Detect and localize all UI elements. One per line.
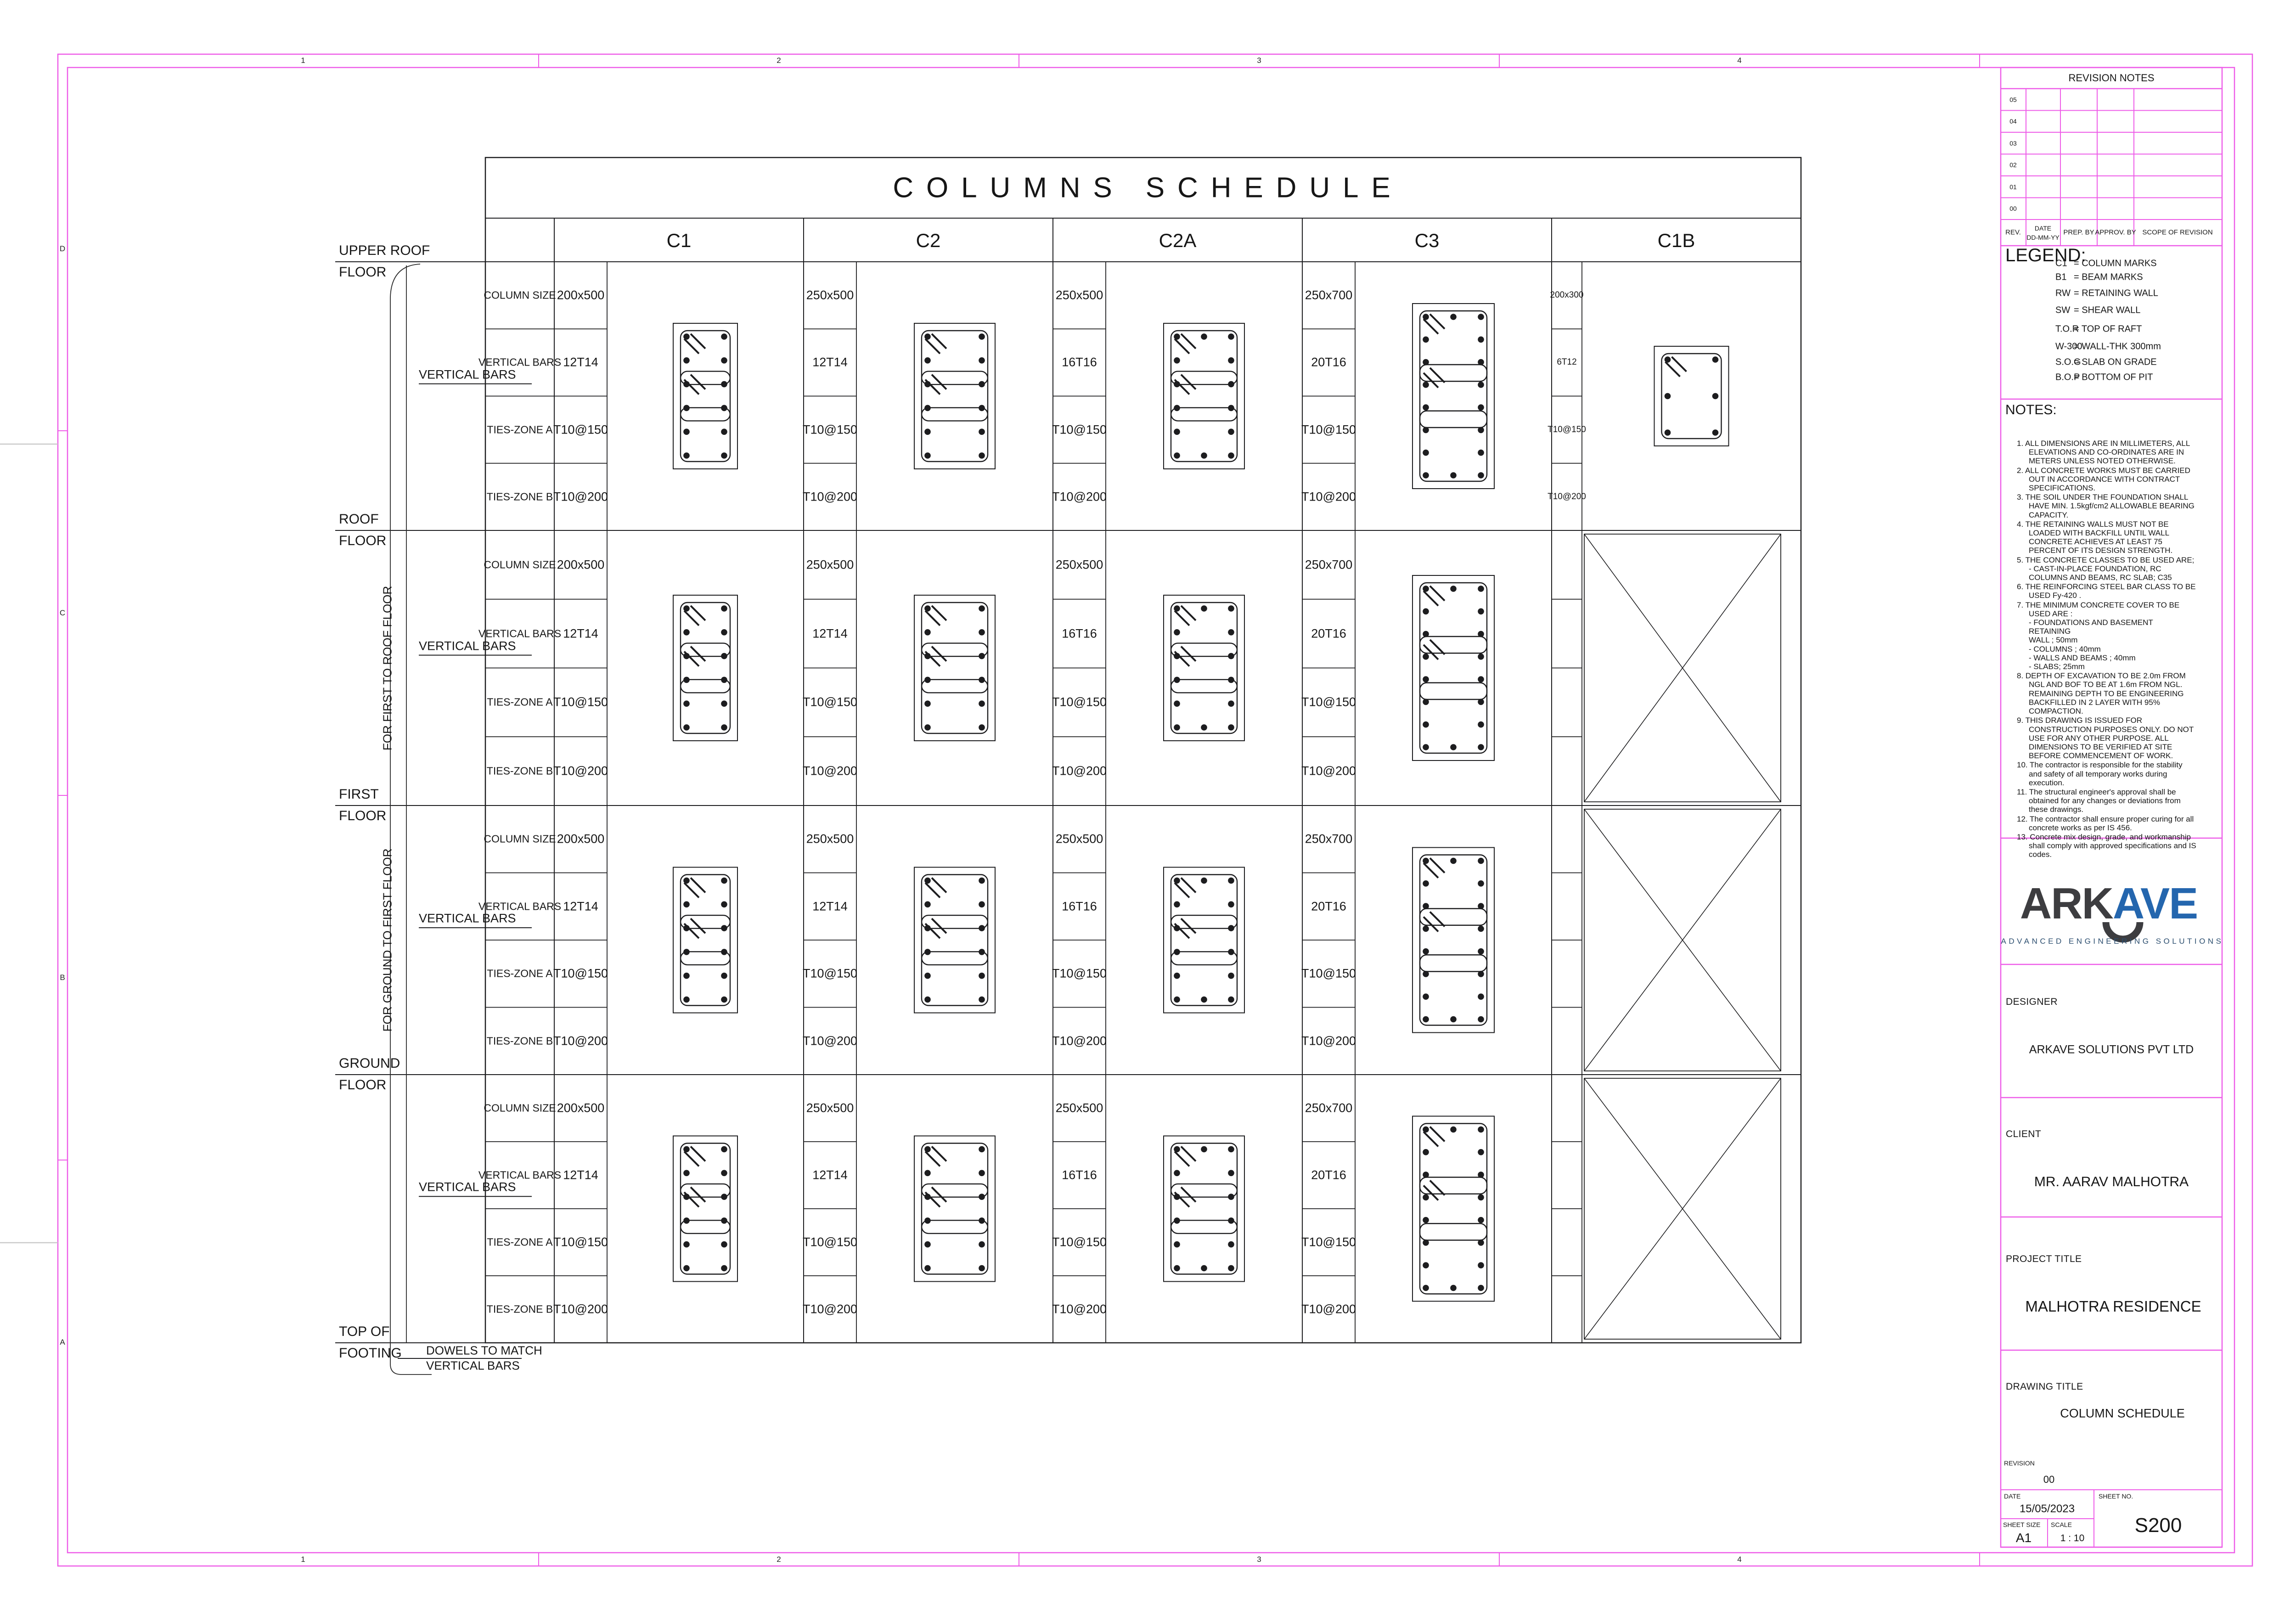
revision-row-number: 02 — [2009, 161, 2017, 169]
revision-row-number: 03 — [2009, 140, 2017, 147]
row-label: TIES-ZONE A — [487, 968, 552, 980]
sheet-no-value: S200 — [2135, 1514, 2182, 1537]
value-c2-vertical-bars: 12T14 — [812, 1168, 848, 1183]
value-c1-ties-zone-a: T10@150 — [553, 967, 608, 981]
note-item: 1. ALL DIMENSIONS ARE IN MILLIMETERS, AL… — [2017, 439, 2197, 466]
value-c3-size: 250x700 — [1305, 1101, 1353, 1115]
value-c2a-vertical-bars: 16T16 — [1062, 1168, 1097, 1183]
sheet-no-label: SHEET NO. — [2099, 1493, 2133, 1500]
value-c1-vertical-bars: 12T14 — [563, 899, 598, 913]
value-c1-ties-zone-a: T10@150 — [553, 1235, 608, 1250]
value-c2a-ties-zone-b: T10@200 — [1052, 764, 1107, 778]
value-c1-ties-zone-b: T10@200 — [553, 1302, 608, 1317]
logo-text-ark: ARK — [2020, 879, 2113, 928]
value-c3-ties-zone-b: T10@200 — [1301, 1034, 1356, 1048]
edge-marker-left-B: B — [60, 973, 65, 982]
value-c3-vertical-bars: 20T16 — [1311, 899, 1346, 913]
designer-label: DESIGNER — [2006, 997, 2058, 1008]
column-sections — [673, 304, 1729, 1301]
value-c1-ties-zone-b: T10@200 — [553, 764, 608, 778]
value-c2-vertical-bars: 12T14 — [812, 626, 848, 641]
value-c3-ties-zone-a: T10@150 — [1301, 695, 1356, 710]
value-c1-vertical-bars: 12T14 — [563, 626, 598, 641]
edge-marker-left-A: A — [60, 1338, 65, 1347]
revision-row-number: 04 — [2009, 118, 2017, 125]
revision-footer-rev: REV. — [2005, 229, 2021, 237]
column-section-c2a — [1164, 323, 1244, 469]
edge-marker-top-3: 3 — [1257, 56, 1261, 65]
value-c3-vertical-bars: 20T16 — [1311, 355, 1346, 370]
group-range-label: FOR GROUND TO FIRST FLOOR — [381, 849, 395, 1032]
edge-marker-top-2: 2 — [777, 56, 781, 65]
floor-label-line2: FLOOR — [339, 265, 386, 280]
column-section-c1 — [673, 867, 737, 1013]
revision-notes-title: REVISION NOTES — [2068, 72, 2154, 84]
value-c2a-ties-zone-a: T10@150 — [1052, 1235, 1107, 1250]
value-c2a-vertical-bars: 16T16 — [1062, 355, 1097, 370]
value-c2-size: 250x500 — [806, 832, 854, 846]
legend-item-value: = BEAM MARKS — [2074, 272, 2143, 283]
value-c3-size: 250x700 — [1305, 288, 1353, 303]
crossed-cells — [1584, 534, 1781, 1339]
value-c2-size: 250x500 — [806, 288, 854, 303]
legend-item-value: = COLUMN MARKS — [2074, 259, 2157, 269]
value-c1-ties-zone-b: T10@200 — [553, 1034, 608, 1048]
value-c2a-size: 250x500 — [1056, 832, 1103, 846]
revision-row-number: 00 — [2009, 205, 2017, 212]
note-item: 8. DEPTH OF EXCAVATION TO BE 2.0m FROM N… — [2017, 671, 2197, 715]
revision-footer-prep: PREP. BY — [2063, 229, 2094, 237]
row-label: VERTICAL BARS — [478, 1169, 561, 1182]
vertical-bars-side-label: VERTICAL BARS — [419, 1180, 516, 1194]
value-c3-ties-zone-a: T10@150 — [1301, 1235, 1356, 1250]
column-section-c3 — [1412, 848, 1494, 1033]
value-c1b-vertical-bars: 6T12 — [1557, 357, 1576, 367]
revision-value: 00 — [2043, 1474, 2054, 1486]
revision-footer-date-line1: DATE — [2035, 225, 2051, 232]
value-c3-vertical-bars: 20T16 — [1311, 626, 1346, 641]
logo-text-ave: AVE — [2113, 879, 2197, 928]
floor-label-line1: FIRST — [339, 787, 379, 802]
notes-list: 1. ALL DIMENSIONS ARE IN MILLIMETERS, AL… — [2017, 439, 2197, 860]
column-section-c2 — [914, 323, 995, 469]
project-title-label: PROJECT TITLE — [2006, 1254, 2082, 1265]
footing-note-line1: DOWELS TO MATCH — [426, 1344, 542, 1358]
sheet-size-value: A1 — [2016, 1531, 2032, 1545]
value-c1-size: 200x500 — [557, 1101, 605, 1115]
column-section-c2a — [1164, 595, 1244, 741]
value-c3-ties-zone-b: T10@200 — [1301, 1302, 1356, 1317]
legend-title: LEGEND: — [2005, 245, 2086, 266]
row-label: TIES-ZONE A — [487, 423, 552, 436]
value-c3-ties-zone-a: T10@150 — [1301, 422, 1356, 437]
value-c2-ties-zone-b: T10@200 — [803, 1034, 857, 1048]
schedule-title: COLUMNS SCHEDULE — [893, 172, 1403, 204]
legend-item-value: = TOP OF RAFT — [2074, 324, 2142, 335]
value-c3-ties-zone-b: T10@200 — [1301, 490, 1356, 504]
value-c2-ties-zone-a: T10@150 — [803, 1235, 857, 1250]
note-item: 10. The contractor is responsible for th… — [2017, 760, 2197, 787]
row-label: VERTICAL BARS — [478, 900, 561, 913]
scale-value: 1 : 10 — [2060, 1533, 2085, 1544]
value-c2-size: 250x500 — [806, 1101, 854, 1115]
edge-marker-top-4: 4 — [1737, 56, 1741, 65]
value-c1b-ties-zone-b: T10@200 — [1548, 492, 1586, 502]
floor-label-line2: FLOOR — [339, 1077, 386, 1093]
column-header-c2: C2 — [916, 230, 941, 252]
value-c1-ties-zone-b: T10@200 — [553, 490, 608, 504]
legend-item-key: B1 — [2055, 272, 2066, 283]
value-c3-size: 250x700 — [1305, 832, 1353, 846]
edge-marker-bottom-2: 2 — [777, 1555, 781, 1564]
value-c2a-ties-zone-a: T10@150 — [1052, 967, 1107, 981]
note-item: 4. THE RETAINING WALLS MUST NOT BE LOADE… — [2017, 520, 2197, 555]
logo-tagline: ADVANCED ENGINEERING SOLUTIONS — [2001, 937, 2224, 946]
value-c2a-vertical-bars: 16T16 — [1062, 899, 1097, 913]
value-c2-ties-zone-a: T10@150 — [803, 422, 857, 437]
value-c2a-size: 250x500 — [1056, 1101, 1103, 1115]
legend-item-key: SW — [2055, 305, 2070, 316]
column-section-c2 — [914, 1136, 995, 1282]
note-item: 9. THIS DRAWING IS ISSUED FOR CONSTRUCTI… — [2017, 716, 2197, 760]
column-section-c3 — [1412, 575, 1494, 760]
row-label: TIES-ZONE A — [487, 696, 552, 709]
floor-label-line1: ROOF — [339, 512, 379, 527]
revision-footer-scope: SCOPE OF REVISION — [2142, 229, 2212, 237]
value-c2-ties-zone-a: T10@150 — [803, 967, 857, 981]
edge-marker-left-C: C — [60, 608, 65, 618]
value-c2a-ties-zone-b: T10@200 — [1052, 1034, 1107, 1048]
row-label: TIES-ZONE B — [487, 1303, 553, 1316]
floor-label-line1: GROUND — [339, 1056, 400, 1071]
legend-item-value: = RETAINING WALL — [2074, 288, 2158, 299]
edge-marker-left-D: D — [60, 244, 65, 253]
column-section-c2 — [914, 867, 995, 1013]
legend-item-value: = BOTTOM OF PIT — [2074, 372, 2153, 383]
column-section-c2a — [1164, 1136, 1244, 1282]
column-section-c1 — [673, 1136, 737, 1282]
value-c2a-ties-zone-a: T10@150 — [1052, 422, 1107, 437]
revision-label: REVISION — [2004, 1459, 2035, 1467]
floor-label-line1: TOP OF — [339, 1324, 390, 1340]
drawing-sheet: 11223344DCBA050403020100C1= COLUMN MARKS… — [0, 0, 2296, 1611]
revision-row-number: 01 — [2009, 183, 2017, 191]
note-item: 13. Concrete mix design, grade, and work… — [2017, 833, 2197, 859]
column-section-c2a — [1164, 867, 1244, 1013]
edge-marker-bottom-1: 1 — [301, 1555, 305, 1564]
revision-row-number: 05 — [2009, 96, 2017, 103]
value-c2-ties-zone-b: T10@200 — [803, 764, 857, 778]
note-item: 12. The contractor shall ensure proper c… — [2017, 815, 2197, 832]
value-c1-ties-zone-a: T10@150 — [553, 695, 608, 710]
value-c2-size: 250x500 — [806, 558, 854, 572]
column-section-c1b — [1654, 346, 1729, 446]
value-c2a-ties-zone-b: T10@200 — [1052, 490, 1107, 504]
value-c1b-ties-zone-a: T10@150 — [1548, 425, 1586, 435]
row-label: TIES-ZONE B — [487, 1035, 553, 1047]
row-label: VERTICAL BARS — [478, 356, 561, 369]
value-c3-ties-zone-a: T10@150 — [1301, 967, 1356, 981]
floor-label-line2: FLOOR — [339, 533, 386, 549]
edge-marker-bottom-3: 3 — [1257, 1555, 1261, 1564]
value-c1-vertical-bars: 12T14 — [563, 355, 598, 370]
value-c2a-ties-zone-a: T10@150 — [1052, 695, 1107, 710]
drawing-title-value: COLUMN SCHEDULE — [2060, 1407, 2185, 1421]
value-c1-vertical-bars: 12T14 — [563, 1168, 598, 1183]
floor-label-line1: UPPER ROOF — [339, 243, 430, 259]
column-header-c1: C1 — [667, 230, 692, 252]
linework-layer — [0, 0, 2296, 1611]
legend-item-value: = SLAB ON GRADE — [2074, 357, 2157, 368]
row-label: COLUMN SIZE — [484, 558, 556, 571]
value-c3-ties-zone-b: T10@200 — [1301, 764, 1356, 778]
designer-value: ARKAVE SOLUTIONS PVT LTD — [2029, 1043, 2194, 1057]
drawing-title-label: DRAWING TITLE — [2006, 1381, 2083, 1392]
vertical-bars-side-label: VERTICAL BARS — [419, 367, 516, 382]
value-c2-vertical-bars: 12T14 — [812, 355, 848, 370]
row-label: COLUMN SIZE — [484, 833, 556, 845]
value-c2a-size: 250x500 — [1056, 558, 1103, 572]
column-section-c2 — [914, 595, 995, 741]
notes-title: NOTES: — [2005, 402, 2057, 418]
footing-note-line2: VERTICAL BARS — [426, 1359, 520, 1373]
value-c2-ties-zone-a: T10@150 — [803, 695, 857, 710]
value-c3-vertical-bars: 20T16 — [1311, 1168, 1346, 1183]
floor-label-line2: FLOOR — [339, 808, 386, 824]
value-c1-size: 200x500 — [557, 832, 605, 846]
revision-footer-date-line2: DD-MM-YY — [2026, 234, 2060, 241]
row-label: TIES-ZONE A — [487, 1236, 552, 1249]
vertical-bars-side-label: VERTICAL BARS — [419, 639, 516, 653]
column-section-c3 — [1412, 304, 1494, 489]
date-value: 15/05/2023 — [2020, 1503, 2075, 1515]
project-title-value: MALHOTRA RESIDENCE — [2025, 1298, 2201, 1315]
legend-item-value: = SHEAR WALL — [2074, 305, 2140, 316]
value-c2a-ties-zone-b: T10@200 — [1052, 1302, 1107, 1317]
client-value: MR. AARAV MALHOTRA — [2034, 1174, 2189, 1190]
row-label: TIES-ZONE B — [487, 765, 553, 777]
value-c1b-size: 200x300 — [1550, 290, 1584, 300]
row-label: COLUMN SIZE — [484, 289, 556, 302]
value-c1-size: 200x500 — [557, 558, 605, 572]
note-item: 2. ALL CONCRETE WORKS MUST BE CARRIED OU… — [2017, 466, 2197, 493]
legend-item-value: = WALL-THK 300mm — [2074, 342, 2161, 352]
note-item: 5. THE CONCRETE CLASSES TO BE USED ARE; … — [2017, 556, 2197, 582]
row-label: COLUMN SIZE — [484, 1102, 556, 1115]
column-header-c3: C3 — [1415, 230, 1440, 252]
edge-marker-bottom-4: 4 — [1737, 1555, 1741, 1564]
value-c2a-size: 250x500 — [1056, 288, 1103, 303]
column-header-c2a: C2A — [1159, 230, 1197, 252]
row-label: VERTICAL BARS — [478, 627, 561, 640]
note-item: 3. THE SOIL UNDER THE FOUNDATION SHALL H… — [2017, 493, 2197, 519]
arkave-logo: ARKAVE — [2020, 879, 2197, 929]
value-c3-size: 250x700 — [1305, 558, 1353, 572]
revision-footer-approv: APPROV. BY — [2095, 229, 2136, 237]
column-section-c3 — [1412, 1116, 1494, 1301]
value-c2a-vertical-bars: 16T16 — [1062, 626, 1097, 641]
value-c1-ties-zone-a: T10@150 — [553, 422, 608, 437]
note-item: 6. THE REINFORCING STEEL BAR CLASS TO BE… — [2017, 582, 2197, 600]
value-c2-ties-zone-b: T10@200 — [803, 490, 857, 504]
value-c2-vertical-bars: 12T14 — [812, 899, 848, 913]
schedule-grid — [335, 158, 1801, 1343]
value-c1-size: 200x500 — [557, 288, 605, 303]
date-label: DATE — [2004, 1493, 2020, 1500]
note-item: 11. The structural engineer's approval s… — [2017, 788, 2197, 814]
sheet-size-label: SHEET SIZE — [2003, 1521, 2040, 1528]
vertical-bars-side-label: VERTICAL BARS — [419, 912, 516, 926]
legend-item-key: RW — [2055, 288, 2071, 299]
row-label: TIES-ZONE B — [487, 490, 553, 503]
edge-marker-top-1: 1 — [301, 56, 305, 65]
scale-label: SCALE — [2051, 1521, 2072, 1528]
floor-label-line2: FOOTING — [339, 1346, 402, 1361]
group-range-label: FOR FIRST TO ROOF FLOOR — [381, 586, 395, 750]
client-label: CLIENT — [2006, 1129, 2041, 1140]
column-section-c1 — [673, 323, 737, 469]
note-item: 7. THE MINIMUM CONCRETE COVER TO BE USED… — [2017, 601, 2197, 671]
column-section-c1 — [673, 595, 737, 741]
value-c2-ties-zone-b: T10@200 — [803, 1302, 857, 1317]
column-header-c1b: C1B — [1658, 230, 1695, 252]
